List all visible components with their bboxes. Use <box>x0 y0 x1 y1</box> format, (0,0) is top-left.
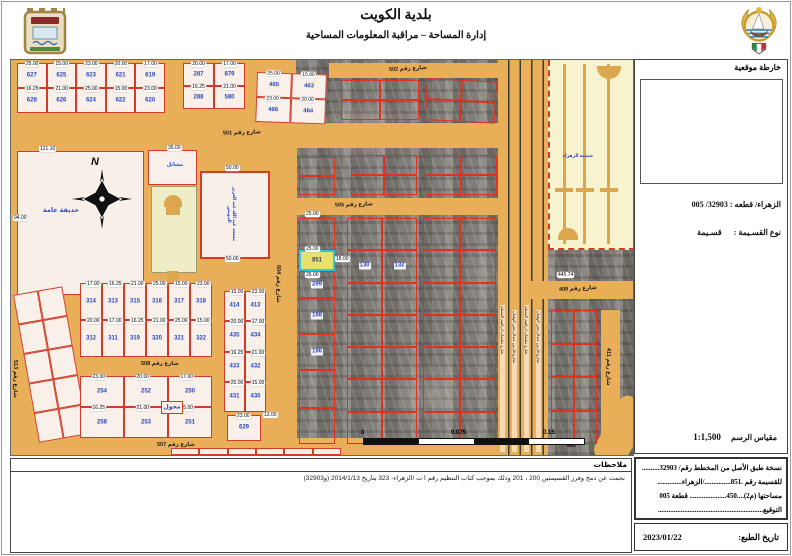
parcel-number: 620 <box>136 97 164 104</box>
dimension-label: 23.00 <box>236 413 251 419</box>
parcel-621: 62120.00 <box>106 63 136 88</box>
dimension-label: 23.00 <box>265 95 280 102</box>
dimension-label: 16.25 <box>230 350 245 356</box>
page-title: بلدية الكويت <box>2 7 790 24</box>
parcel-type-label: نوع القسـيمة : <box>734 228 781 237</box>
print-date-panel: تاريخ الطبع: 2023/01/22 <box>634 523 788 551</box>
parcel <box>380 80 419 100</box>
dimension-label: 17.00 <box>143 61 158 67</box>
dimension-label: 20.00 <box>114 61 129 67</box>
certificate-panel: نسخة طبق الأصل من المخطط رقم/ 32903.....… <box>634 457 788 520</box>
parcel-580: 58021.00 <box>214 86 245 109</box>
parcel-628: 62816.25 <box>17 88 47 113</box>
dimension-label: 15.00 <box>251 380 266 386</box>
parcel-number: 431 <box>225 393 244 400</box>
dimension-label: 21.00 <box>130 281 145 287</box>
parcel-number: 433 <box>225 363 244 370</box>
dimension-label: 16.25 <box>130 318 145 324</box>
parcel <box>48 345 78 379</box>
parcel-625: 62515.00 <box>47 63 77 88</box>
dimension-label: 21.00 <box>152 318 167 324</box>
parcel <box>423 315 460 347</box>
block-n-right: 46525.0046315.0046623.0046420.00 <box>255 72 327 124</box>
parcel-number: 322 <box>191 335 211 342</box>
block-a-m4 <box>423 218 496 444</box>
dimension-label: 16.25 <box>191 84 206 90</box>
parcel-433: 43316.25 <box>224 352 245 382</box>
parcel-number: 628 <box>18 97 46 104</box>
street-label-504: شارع رقم 504 <box>275 265 281 303</box>
document-header: بلدية الكويت إدارة المساحة – مراقبة المع… <box>2 2 790 58</box>
parcel-432: 43221.00 <box>245 352 266 382</box>
compass-rose-icon <box>71 168 133 235</box>
dimension-label: 25.00 <box>305 272 320 278</box>
sidebar-info-panel: خارطة موقعية الزهراء/ قطعه : 32903/ 005 … <box>634 59 788 454</box>
block-a-m1 <box>351 155 417 195</box>
parcel-319: 31916.25 <box>124 320 146 357</box>
parcel <box>351 175 384 195</box>
cadastral-map: N 0 0.075 0.15 km شارع رقم 501شارع رقم 5… <box>10 59 634 456</box>
parcel-number: 625 <box>48 72 76 79</box>
dimension-label: 21.00 <box>54 86 69 92</box>
parcel-محول: محول <box>161 401 183 414</box>
parcel-627: 62725.00 <box>17 63 47 88</box>
certificate-line-1: نسخة طبق الأصل من المخطط رقم/ 32903.....… <box>638 461 782 475</box>
parcel-318: 31823.00 <box>190 283 212 320</box>
block-a-n2 <box>425 78 497 124</box>
page-subtitle: إدارة المساحة – مراقبة المعلومات المساحي… <box>2 30 790 41</box>
parcel-number: 311 <box>103 335 123 342</box>
dimension-label: 20.00 <box>191 61 206 67</box>
parcel <box>347 218 382 250</box>
parcel <box>460 379 497 411</box>
parcel-619: 61917.00 <box>135 63 165 88</box>
landmark-label: مشاتل <box>161 162 189 168</box>
parcel-number: 130 <box>358 263 370 270</box>
dimension-label: 20.00 <box>300 97 315 104</box>
dimension-label: 13.00 <box>263 412 278 418</box>
parcel-414: 41415.00 <box>224 291 245 321</box>
parcel <box>256 448 284 455</box>
parcel <box>382 347 417 379</box>
parcel-number: 315 <box>125 298 145 305</box>
parcel-322: 32215.00 <box>190 320 212 357</box>
parcel <box>423 283 460 315</box>
parcel-number: 319 <box>125 335 145 342</box>
parcel-311: 31117.00 <box>102 320 124 357</box>
parcel-number: 430 <box>246 393 265 400</box>
parcel <box>347 379 382 411</box>
parcel-620: 62023.00 <box>135 88 165 113</box>
certificate-line-4: التوقيع.................................… <box>638 503 782 517</box>
parcel-number: 623 <box>77 72 105 79</box>
parcel-number: 463 <box>292 82 325 90</box>
parcel-number: 621 <box>107 72 135 79</box>
block-c-313: 31417.0031316.2531521.0031625.0031715.00… <box>80 283 212 357</box>
parcel-number: 312 <box>81 335 101 342</box>
parcel-316: 31625.00 <box>146 283 168 320</box>
parcel <box>425 155 461 175</box>
notes-body: نجمت عن دمج وفرز القسيمتين 200 ، 201 وذل… <box>11 472 631 486</box>
parcel-number: 626 <box>48 97 76 104</box>
parcel <box>551 344 574 378</box>
street-505 <box>267 198 499 215</box>
dimension-label: 18.00 <box>335 256 350 262</box>
parcel <box>382 315 417 347</box>
parcel <box>284 448 312 455</box>
parcel-464: 46420.00 <box>290 98 326 124</box>
parcel <box>299 176 335 195</box>
parcel <box>423 379 460 411</box>
landmark-label: مسجد عبد الله عبد العزيز الدويش <box>227 178 237 250</box>
parcel <box>351 155 384 175</box>
parcel-258: 25816.25 <box>80 407 124 438</box>
block-nw-row: 62725.0062515.0062323.0062120.0061917.00… <box>17 63 165 113</box>
parcel-879: 87917.00 <box>214 63 245 86</box>
parcel-413: 41323.00 <box>245 291 266 321</box>
dome-icon <box>164 195 182 207</box>
parcel-number: 435 <box>225 333 244 340</box>
block-a-n1 <box>341 80 419 120</box>
certificate-line-2: للقسيمة رقم .851.............../الزهراء.… <box>638 475 782 489</box>
parcel-196: 196 <box>299 334 335 370</box>
map-scale-line: مقياس الرسم 1:1,500 <box>639 432 777 442</box>
parcel <box>347 347 382 379</box>
dimension-label: 16.25 <box>108 281 123 287</box>
parcel-number: 198 <box>311 313 323 320</box>
parcel <box>460 250 497 282</box>
parcel <box>384 155 417 175</box>
parcel <box>53 375 83 409</box>
street-label-507: شارع رقم 507 <box>157 442 195 448</box>
parcel <box>313 448 341 455</box>
parcel-317: 31715.00 <box>168 283 190 320</box>
parcel-313: 31316.25 <box>102 283 124 320</box>
dimension-label: 20.00 <box>230 319 245 325</box>
dimension-label: 17.00 <box>251 319 266 325</box>
parcel <box>551 377 574 411</box>
dimension-label: 25.00 <box>305 246 320 252</box>
parcel-622: 62215.00 <box>106 88 136 113</box>
parcel-629: 62923.00 <box>227 415 261 441</box>
parcel <box>460 101 496 124</box>
dimension-label: 21.00 <box>136 405 151 411</box>
dimension-label: 20.00 <box>136 374 151 380</box>
dimension-label: 23.00 <box>196 281 211 287</box>
dimension-label: 121.10 <box>39 146 56 152</box>
parcel-number: 879 <box>215 71 244 78</box>
scale-max: 0.15 <box>543 430 555 436</box>
parcel <box>199 448 227 455</box>
parcel <box>299 408 335 444</box>
parcel <box>382 379 417 411</box>
parcel-number: 619 <box>136 72 164 79</box>
dimension-label: 21.00 <box>222 84 237 90</box>
header-titles: بلدية الكويت إدارة المساحة – مراقبة المع… <box>2 7 790 41</box>
parcel <box>171 448 199 455</box>
parcel-type-line: نوع القسـيمة : قسـيمة <box>639 228 781 237</box>
dimension-label: 17.00 <box>180 374 195 380</box>
parcel <box>461 155 497 175</box>
parcel-198: 198 <box>299 298 335 334</box>
parcel-130: 130 <box>347 250 382 282</box>
parcel-430: 43015.00 <box>245 382 266 412</box>
parcel-number: 254 <box>81 388 123 395</box>
parcel <box>426 78 462 101</box>
dimension-label: 17.00 <box>222 61 237 67</box>
scale-zero: 0 <box>361 430 364 436</box>
dimension-label: 17.00 <box>108 318 123 324</box>
parcel <box>425 99 461 122</box>
dimension-label: 21.00 <box>251 350 266 356</box>
dimension-label: 50.00 <box>225 165 240 171</box>
parcel-number: 627 <box>18 72 46 79</box>
parcel <box>299 370 335 408</box>
street-label-411: شارع رقم 411 <box>605 348 611 385</box>
dimension-label: 445.74 <box>557 272 574 278</box>
parcel-number: 465 <box>257 81 290 89</box>
parcel-321: 32125.00 <box>168 320 190 357</box>
certificate-line-3: مساحتها (م2)....450.....................… <box>638 489 782 503</box>
parcel-number: 434 <box>246 333 265 340</box>
kuwait-state-emblem-icon <box>736 5 782 60</box>
dimension-label: 35.00 <box>167 145 182 151</box>
parcel-number: 851 <box>301 257 333 264</box>
parcel <box>460 283 497 315</box>
parcel-number: 299 <box>311 281 323 288</box>
scale-mid: 0.075 <box>451 430 466 436</box>
parcel <box>299 157 335 176</box>
street-504 <box>269 120 297 455</box>
parcel <box>461 175 497 195</box>
block-a-col-top <box>299 157 335 195</box>
parcel-number: 464 <box>292 107 325 115</box>
block-a-m2 <box>425 155 497 195</box>
parcel-number: 321 <box>169 335 189 342</box>
parcel <box>460 218 497 250</box>
block-muhawwil: محول <box>161 401 183 414</box>
notes-title: ملاحظات <box>11 459 631 472</box>
dimension-label: 23.00 <box>251 289 266 295</box>
parcel <box>423 218 460 250</box>
block-a-m3: 130132 <box>347 218 417 444</box>
dimension-label: 15.00 <box>174 281 189 287</box>
print-date-label: تاريخ الطبع: <box>738 532 779 543</box>
parcel-254: 25423.00 <box>80 376 124 407</box>
parcel-number: 288 <box>184 94 213 101</box>
parcel-623: 62323.00 <box>76 63 106 88</box>
block-n-mid: 28720.0087917.0028816.2558021.00 <box>183 63 245 109</box>
scale-label: مقياس الرسم <box>731 433 777 442</box>
parcel-466: 46623.00 <box>255 97 291 123</box>
parcel <box>460 315 497 347</box>
parcel <box>425 175 461 195</box>
block-a-e1 <box>551 310 597 444</box>
parcel-number: 413 <box>246 303 265 310</box>
block-e-629: 62923.00 <box>227 415 261 441</box>
dimension-label: 25.00 <box>305 211 320 217</box>
parcel-288: 28816.25 <box>183 86 214 109</box>
parcel <box>382 283 417 315</box>
parcel <box>347 315 382 347</box>
parcel-number: 624 <box>77 97 105 104</box>
parcel-132: 132 <box>382 250 417 282</box>
parcel <box>347 283 382 315</box>
parcel <box>382 218 417 250</box>
parcel <box>228 448 256 455</box>
parcel-number: 466 <box>257 106 290 114</box>
parcel-312: 31220.00 <box>80 320 102 357</box>
street-label-508: شارع رقم 508 <box>141 361 179 367</box>
dimension-label: 23.00 <box>84 61 99 67</box>
block-e-413: 41415.0041323.0043520.0043417.0043316.25… <box>224 291 266 412</box>
dimension-label: 17.00 <box>86 281 101 287</box>
parcel-431: 43125.00 <box>224 382 245 412</box>
print-date-value: 2023/01/22 <box>643 532 682 542</box>
location-map-box <box>640 79 783 184</box>
location-map-label: خارطة موقعية <box>635 60 787 74</box>
dimension-label: 16.25 <box>25 86 40 92</box>
parcel <box>341 80 380 100</box>
parcel <box>384 175 417 195</box>
parcel <box>574 344 597 378</box>
parcel-number: 258 <box>81 419 123 426</box>
dimension-label: 16.25 <box>92 405 107 411</box>
parcel-434: 43417.00 <box>245 321 266 351</box>
parcel-435: 43520.00 <box>224 321 245 351</box>
parcel-320: 32021.00 <box>146 320 168 357</box>
parcel-number: 251 <box>169 419 211 426</box>
parcel <box>461 80 497 103</box>
parcel-number: 287 <box>184 71 213 78</box>
parcel-314: 31417.00 <box>80 283 102 320</box>
parcel-number: 132 <box>393 263 405 270</box>
dimension-label: 15.00 <box>301 72 316 79</box>
parcel <box>574 310 597 344</box>
parcel-number: 253 <box>125 419 167 426</box>
parcel-number: 317 <box>169 298 189 305</box>
block-c-252: 25423.0025220.0025017.0025816.2525321.00… <box>80 376 212 438</box>
landmark-label: جمعية الزهراء <box>557 153 599 159</box>
parcel-number: 196 <box>311 349 323 356</box>
scale-bar-segments <box>363 438 585 445</box>
dimension-label: 15.00 <box>114 86 129 92</box>
parcel-463: 46315.00 <box>291 73 327 99</box>
parcel-number: 318 <box>191 298 211 305</box>
parcel-number: 629 <box>228 425 260 432</box>
parcel-number: محول <box>162 404 182 411</box>
dimension-label: 25.00 <box>230 380 245 386</box>
block-s-sliver <box>171 448 341 455</box>
parcel-number: 432 <box>246 363 265 370</box>
parcel <box>341 100 380 120</box>
parcel <box>423 347 460 379</box>
parcel-315: 31521.00 <box>124 283 146 320</box>
dimension-label: 15.00 <box>230 289 245 295</box>
parcel-626: 62621.00 <box>47 88 77 113</box>
dimension-label: 25.00 <box>25 61 40 67</box>
dimension-label: 50.00 <box>225 256 240 262</box>
north-indicator: N <box>91 156 99 168</box>
parcel-number: 414 <box>225 303 244 310</box>
dimension-label: 20.00 <box>86 318 101 324</box>
dimension-label: 23.00 <box>143 86 158 92</box>
parcel-465: 46525.00 <box>256 72 292 98</box>
scale-bar: 0 0.075 0.15 km <box>351 428 597 452</box>
parcel <box>380 100 419 120</box>
dimension-label: 25.00 <box>174 318 189 324</box>
street-label-513: شارع رقم 513 <box>12 360 18 398</box>
parcel-number: 250 <box>169 388 211 395</box>
document-page: بلدية الكويت إدارة المساحة – مراقبة المع… <box>1 1 791 555</box>
parcel <box>43 316 73 350</box>
dimension-label: 94.00 <box>13 215 28 221</box>
parcel-624: 62425.00 <box>76 88 106 113</box>
parcel-number: 320 <box>147 335 167 342</box>
area-block-line: الزهراء/ قطعه : 32903/ 005 <box>639 200 781 209</box>
parcel-number: 314 <box>81 298 101 305</box>
parcel <box>38 286 68 320</box>
parcel <box>460 347 497 379</box>
parcel-number: 622 <box>107 97 135 104</box>
dimension-label: 15.00 <box>196 318 211 324</box>
parcel <box>551 310 574 344</box>
parcel <box>423 250 460 282</box>
scale-value: 1:1,500 <box>693 432 721 442</box>
dimension-label: 15.00 <box>54 61 69 67</box>
highlighted-parcel-851: 851 <box>299 250 335 271</box>
mosque-building-footprint <box>151 186 197 273</box>
dimension-label: 25.00 <box>84 86 99 92</box>
dimension-label: 25.00 <box>266 70 281 77</box>
dimension-label: 25.00 <box>152 281 167 287</box>
parcel <box>574 377 597 411</box>
parcel-number: 313 <box>103 298 123 305</box>
parcel-number: 316 <box>147 298 167 305</box>
dimension-label: 23.00 <box>92 374 107 380</box>
parcel-type-value: قسـيمة <box>697 228 722 237</box>
notes-panel: ملاحظات نجمت عن دمج وفرز القسيمتين 200 ،… <box>10 458 632 553</box>
parcel-287: 28720.00 <box>183 63 214 86</box>
parcel-number: 580 <box>215 94 244 101</box>
parcel-number: 252 <box>125 388 167 395</box>
